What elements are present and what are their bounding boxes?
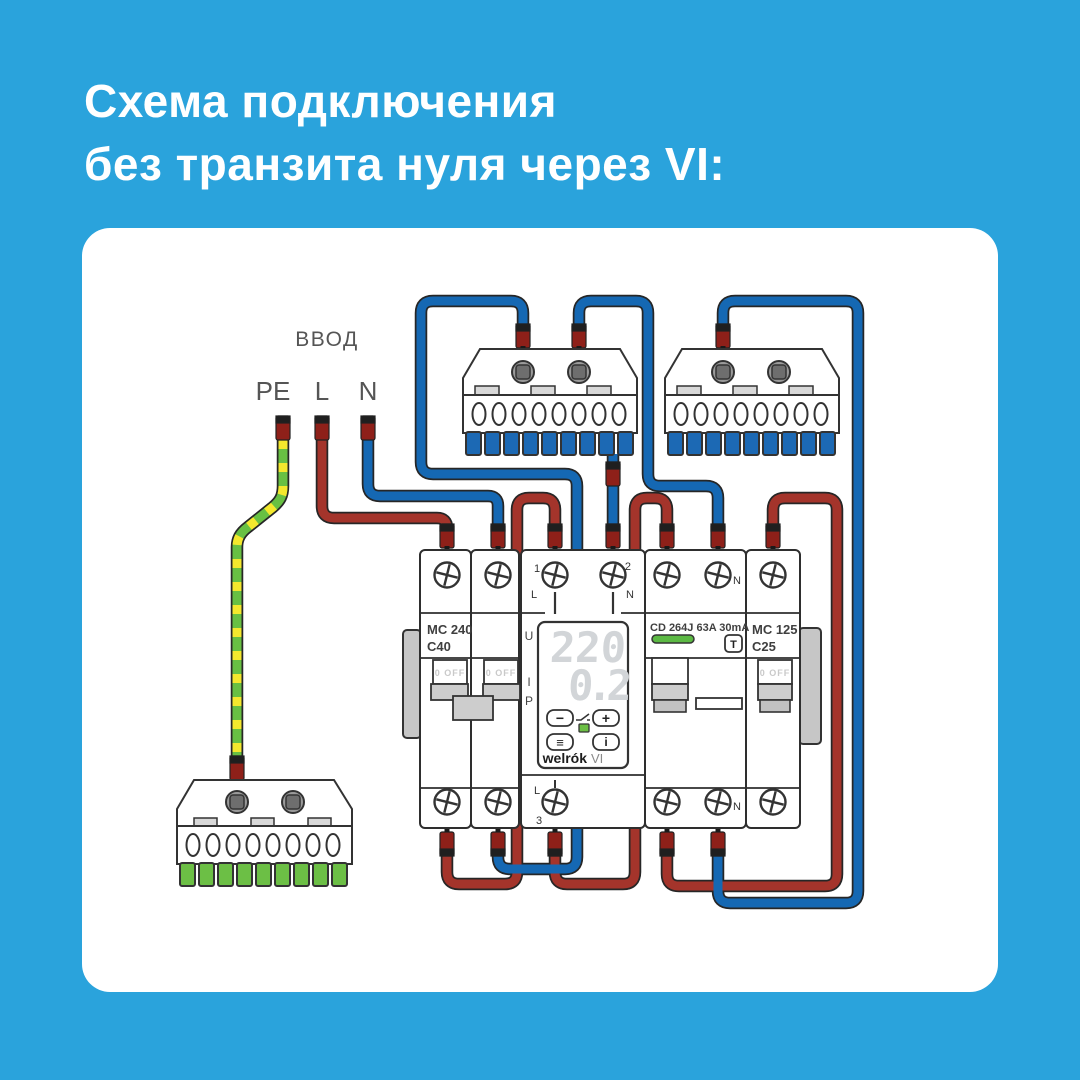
- vi-terminal-3: 3: [536, 815, 542, 827]
- mc240-name: MC 240: [427, 622, 473, 637]
- mc240-switch-state-2: 0 OFF: [486, 668, 517, 678]
- pe-label: PE: [256, 376, 291, 406]
- mc125-rating: C25: [752, 639, 776, 654]
- mc125-name: MC 125: [752, 622, 798, 637]
- neutral-bus-block-2: [665, 349, 839, 455]
- mc125-breaker: MC 125 C25 0 OFF: [752, 622, 798, 712]
- vi-menu-glyph: ≡: [556, 735, 564, 750]
- vi-model: VI: [591, 751, 603, 766]
- title-line-2: без транзита нуля через VI:: [84, 133, 984, 196]
- blue-teeth: [668, 432, 835, 455]
- rcd-n-bottom: N: [733, 801, 741, 813]
- pe-bus-block: [177, 780, 352, 886]
- vi-u-label: U: [525, 629, 534, 643]
- rcd-link-bar: [696, 698, 742, 709]
- vi-terminal-1-line: L: [531, 589, 537, 601]
- pe-wire: [237, 440, 283, 758]
- vi-info-glyph: i: [604, 735, 607, 749]
- input-labels: ВВОД PE L N: [256, 328, 378, 406]
- vi-status-led: [579, 724, 589, 732]
- rcd-test-glyph: T: [730, 639, 737, 651]
- din-flange-right: [799, 628, 821, 744]
- mc125-toggle[interactable]: [758, 684, 792, 700]
- neutral-bus-block-1: [463, 349, 637, 455]
- rcd-n-top: N: [733, 575, 741, 587]
- vi-terminal-2-line: N: [626, 589, 634, 601]
- vi-display-current: 0.2: [567, 661, 630, 710]
- rcd-indicator: [652, 635, 694, 643]
- din-flange-left: [403, 630, 421, 738]
- rcd-name: CD 264J 63A 30mA: [650, 622, 749, 634]
- title-line-1: Схема подключения: [84, 70, 984, 133]
- vi-brand: welrók: [542, 750, 588, 766]
- rcd-toggle[interactable]: [652, 684, 688, 700]
- mc240-switch-state-1: 0 OFF: [435, 668, 466, 678]
- mc125-switch-state: 0 OFF: [760, 668, 791, 678]
- vi-plus-glyph: +: [602, 710, 610, 726]
- vi-p-label: P: [525, 694, 533, 708]
- mc240-toggle-tie[interactable]: [453, 696, 493, 720]
- vi-i-label: I: [527, 675, 530, 689]
- l-label: L: [315, 376, 329, 406]
- n-label: N: [359, 376, 378, 406]
- green-teeth: [180, 863, 347, 886]
- input-title: ВВОД: [295, 328, 358, 351]
- vi-minus-glyph: −: [556, 710, 564, 726]
- diagram-card: ВВОД PE L N: [82, 228, 998, 992]
- blue-teeth: [466, 432, 633, 455]
- page-title: Схема подключения без транзита нуля чере…: [84, 70, 984, 196]
- mc240-rating: C40: [427, 639, 451, 654]
- wiring-diagram: ВВОД PE L N: [82, 228, 998, 992]
- vi-terminal-3-line: L: [534, 785, 540, 797]
- vi-terminal-1: 1: [534, 563, 540, 575]
